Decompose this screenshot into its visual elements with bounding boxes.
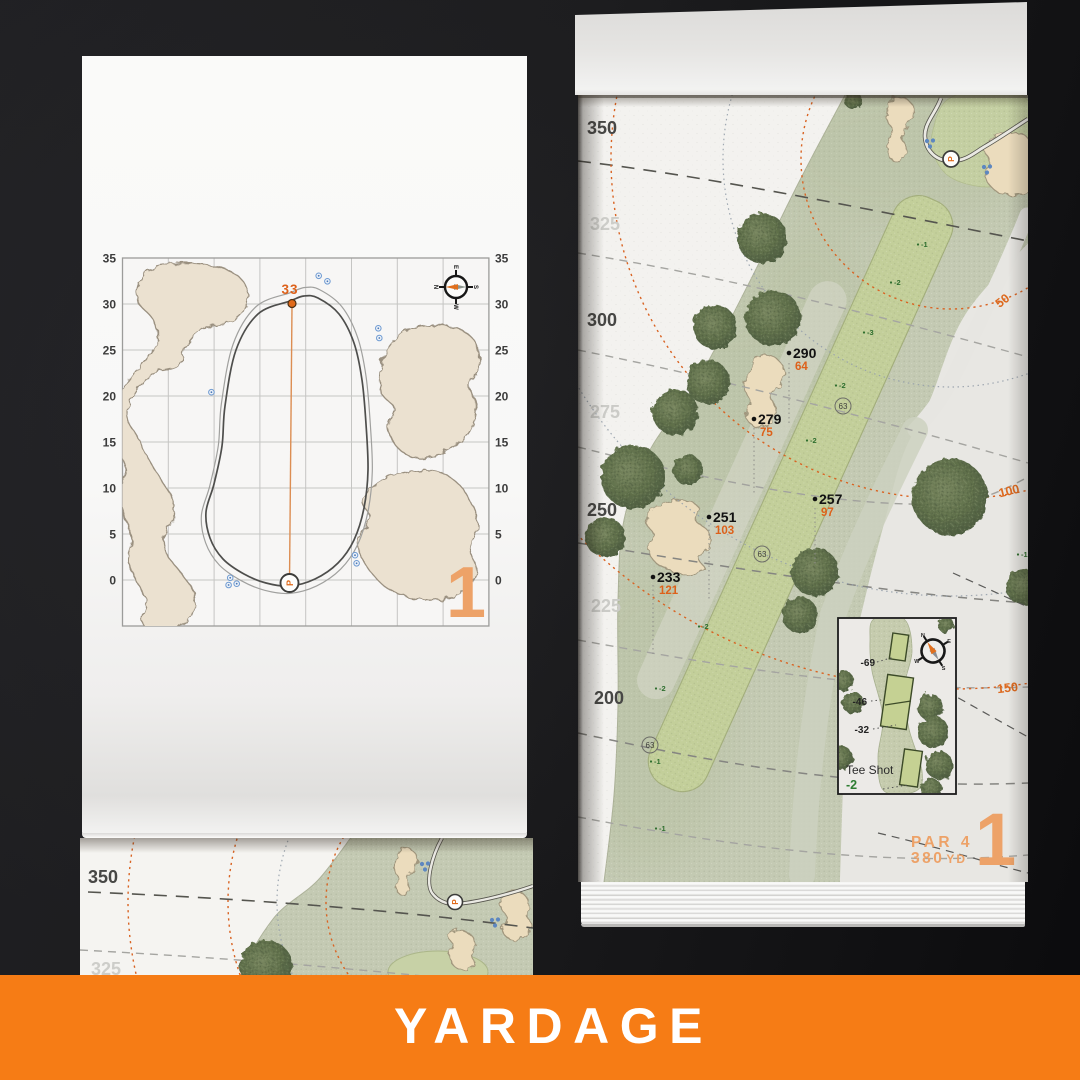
svg-text:P: P: [946, 156, 956, 162]
svg-text:251: 251: [713, 509, 737, 525]
svg-text:-2: -2: [810, 436, 817, 445]
svg-text:N: N: [921, 633, 925, 639]
svg-text:-46: -46: [853, 697, 868, 708]
svg-text:S: S: [942, 666, 946, 672]
svg-text:E: E: [452, 265, 458, 269]
svg-text:P: P: [285, 580, 295, 586]
svg-text:30: 30: [495, 298, 509, 312]
svg-text:5: 5: [109, 528, 116, 542]
svg-text:-1: -1: [921, 240, 928, 249]
svg-text:257: 257: [819, 491, 843, 507]
svg-text:290: 290: [793, 345, 817, 361]
svg-text:35: 35: [103, 252, 117, 266]
svg-text:10: 10: [495, 482, 509, 496]
svg-text:W: W: [452, 304, 458, 310]
svg-text:S: S: [472, 285, 478, 289]
svg-text:0: 0: [495, 574, 502, 588]
svg-text:75: 75: [760, 427, 773, 439]
svg-text:63: 63: [839, 402, 848, 411]
svg-text:97: 97: [821, 507, 834, 519]
svg-text:64: 64: [795, 361, 808, 373]
svg-text:35: 35: [495, 252, 509, 266]
svg-text:380YD: 380YD: [911, 850, 967, 867]
svg-text:-2: -2: [839, 381, 846, 390]
svg-text:5: 5: [495, 528, 502, 542]
svg-text:279: 279: [758, 411, 782, 427]
svg-text:-2: -2: [894, 278, 901, 287]
svg-text:E: E: [947, 639, 951, 645]
svg-text:-1: -1: [654, 757, 661, 766]
svg-text:10: 10: [103, 482, 117, 496]
svg-text:-1: -1: [659, 824, 666, 833]
svg-text:-2: -2: [702, 622, 709, 631]
svg-text:PAR 4: PAR 4: [911, 834, 973, 851]
svg-text:20: 20: [103, 390, 117, 404]
svg-text:-2: -2: [846, 778, 857, 792]
svg-text:25: 25: [495, 344, 509, 358]
svg-text:121: 121: [659, 585, 679, 597]
svg-text:350: 350: [88, 867, 118, 887]
svg-text:P: P: [451, 899, 460, 905]
svg-text:15: 15: [103, 436, 117, 450]
svg-text:N: N: [432, 285, 438, 289]
svg-text:30: 30: [103, 298, 117, 312]
svg-text:Tee Shot: Tee Shot: [846, 763, 894, 777]
svg-text:63: 63: [646, 741, 655, 750]
svg-text:W: W: [914, 659, 920, 665]
svg-text:1: 1: [446, 553, 486, 633]
svg-text:-2: -2: [659, 684, 666, 693]
svg-text:-3: -3: [867, 328, 874, 337]
svg-text:20: 20: [495, 390, 509, 404]
svg-text:25: 25: [103, 344, 117, 358]
svg-text:-69: -69: [861, 658, 876, 669]
svg-text:15: 15: [495, 436, 509, 450]
svg-text:103: 103: [715, 525, 734, 537]
svg-text:0: 0: [109, 574, 116, 588]
svg-text:233: 233: [657, 569, 681, 585]
svg-text:325: 325: [91, 959, 121, 975]
svg-text:-32: -32: [855, 725, 870, 736]
svg-text:63: 63: [758, 550, 767, 559]
svg-text:33: 33: [281, 282, 298, 297]
